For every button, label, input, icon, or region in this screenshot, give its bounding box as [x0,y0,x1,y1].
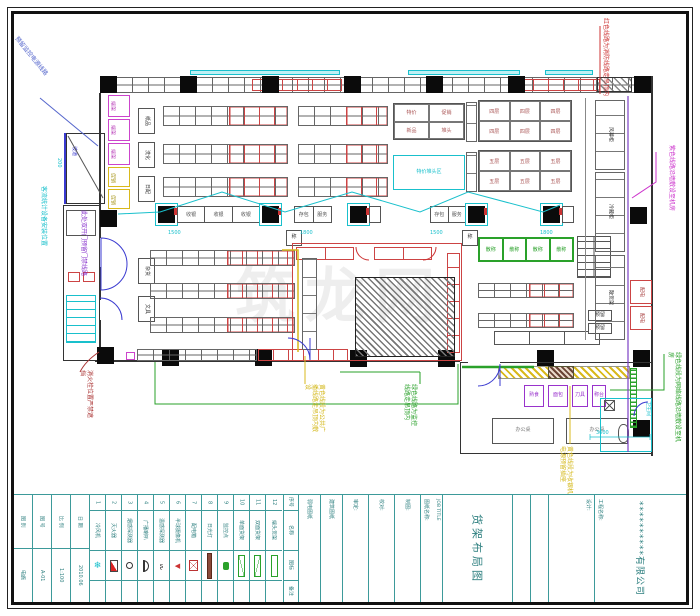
sign-label: 校对: [378,499,385,511]
design-col: 设计: [549,495,595,602]
company-name: **********有限公司 [634,501,647,596]
fire-extinguisher-icon [110,560,118,572]
job-title-en: JOB TITLE [435,499,440,521]
light-bar-icon [207,553,212,579]
drawing-title-col: 货架布局图 [443,495,513,602]
legend-name: 监控点 [222,523,229,538]
info-label: 图 号 [39,516,46,528]
legend-headers: 序号 名称 图标 备注 [284,495,299,602]
rack-end-icon [271,555,278,577]
doc-col: 弱电图纸 [299,495,321,602]
annotation-cctv-line: 绿色线路为监控线路走吊顶内 [368,384,416,426]
drawing-title: 货架布局图 [470,514,486,584]
sign-col: 制图: [395,495,421,602]
design-label: 设计: [585,499,592,511]
legend-header: 名称 [288,525,295,535]
legend-name: 单面货架 [238,520,245,540]
title-block: 图 别 电施 图 号 A-01 比 例 1:100 日 期 2010.06 1 … [14,494,686,602]
legend-name: 冷风机 [94,523,101,538]
legend-num: 2 [111,501,117,504]
info-value: 电施 [20,570,27,580]
drawing-sheet: 筑龙网 坡道 端架 端架 端架 促销 促销 纸品 洗化 日配 杂货 [0,0,700,616]
legend-item: 6 半球摄像机 ◀ [170,495,186,602]
smoke-detector-icon [126,562,133,569]
project-name-label: 工程名称: [597,499,604,521]
legend-strip: 1 冷风机 ❄ 2 灭火器 3 烟感探测器 4 广播喇叭 5 温感探测器 [90,495,284,602]
doc-col: 建筑图纸 [321,495,343,602]
legend-item: 2 灭火器 [106,495,122,602]
annotation-broadcast-line: 黄色线段为公共广播线路走吊顶内敷设 [262,384,324,436]
info-value: 2010.06 [77,565,83,586]
job-title-label: 图纸名称: [423,499,430,521]
rack-single-icon [238,555,245,577]
legend-item: 10 单面货架 [234,495,250,602]
legend-name: 灭火器 [110,523,117,538]
legend-item: 7 配电箱 [186,495,202,602]
snowflake-icon: ❄ [94,561,102,571]
heat-sensor-icon: ʂ [160,562,164,570]
legend-name: 配电箱 [190,523,197,538]
spare-col [531,495,549,602]
legend-num: 5 [159,501,165,504]
annotation-door-access: 此处双开门预留门禁线路 [66,210,86,290]
legend-num: 12 [271,499,277,505]
info-col: 日 期 2010.06 [71,495,89,602]
job-title-label-col: 图纸名称: JOB TITLE [421,495,443,602]
sign-label: 制图: [404,499,411,511]
legend-num: 8 [207,501,213,504]
info-value: A-01 [39,570,45,581]
annotation-hydrant: 消火栓位置严禁遮挡 [72,370,92,420]
legend-num: 1 [95,501,101,504]
info-label: 日 期 [77,516,84,528]
power-box-icon [189,560,198,571]
legend-num: 9 [223,501,229,504]
legend-name: 温感探测器 [158,518,165,543]
info-col: 图 别 电施 [14,495,33,602]
doc-label: 弱电图纸 [306,499,313,519]
monitor-point-icon [223,562,229,570]
legend-item: 9 监控点 [218,495,234,602]
speaker-horn-icon [143,560,149,572]
legend-num: 7 [191,501,197,504]
company-col: 工程名称: **********有限公司 [595,495,686,602]
legend-name: 日光灯 [206,523,213,538]
legend-name: 端头货架 [271,520,278,540]
info-label: 图 别 [20,516,27,528]
legend-name: 双面货架 [254,520,261,540]
info-col: 图 号 A-01 [33,495,52,602]
legend-item: 4 广播喇叭 [138,495,154,602]
legend-num: 3 [127,501,133,504]
legend-item: 12 端头货架 [266,495,282,602]
legend-name: 半球摄像机 [174,518,181,543]
annotation-fire-line: 红色线路为消防线路走吊顶内 [584,18,608,96]
legend-num: 4 [143,501,149,504]
legend-header: 图标 [288,560,295,570]
legend-item: 5 温感探测器 ʂ [154,495,170,602]
legend-header: 序号 [288,497,295,507]
dome-camera-icon: ◀ [175,562,180,570]
legend-num: 6 [175,501,181,504]
legend-name: 烟感探测器 [126,518,133,543]
annotation-network-line: 绿色线段为网络线路沿墙敷设至机房 [652,352,680,446]
spare-col [513,495,531,602]
rack-double-icon [254,555,261,577]
legend-header: 备注 [288,586,295,596]
annotation-purple-line: 紫色线路沿墙敷设至机房 [656,145,674,219]
info-col: 比 例 1:100 [52,495,71,602]
sign-col: 审定: [343,495,369,602]
legend-item: 11 双面货架 [250,495,266,602]
info-table: 图 别 电施 图 号 A-01 比 例 1:100 日 期 2010.06 [14,495,90,602]
legend-item: 1 冷风机 ❄ [90,495,106,602]
legend-item: 8 日光灯 [202,495,218,602]
legend-name: 广播喇叭 [142,520,149,540]
info-label: 比 例 [58,516,65,528]
sign-label: 审定: [352,499,359,511]
annotation-people-counter: 客流统计设备安装位置 [28,186,46,260]
legend-num: 11 [255,499,261,505]
doc-label: 建筑图纸 [328,499,335,519]
annotation-pos-power: 黄色线段为收银机电源预留插座 [520,446,572,494]
legend-item: 3 烟感探测器 [122,495,138,602]
sign-col: 校对: [369,495,395,602]
legend-num: 10 [239,499,245,505]
info-value: 1:100 [58,568,64,582]
